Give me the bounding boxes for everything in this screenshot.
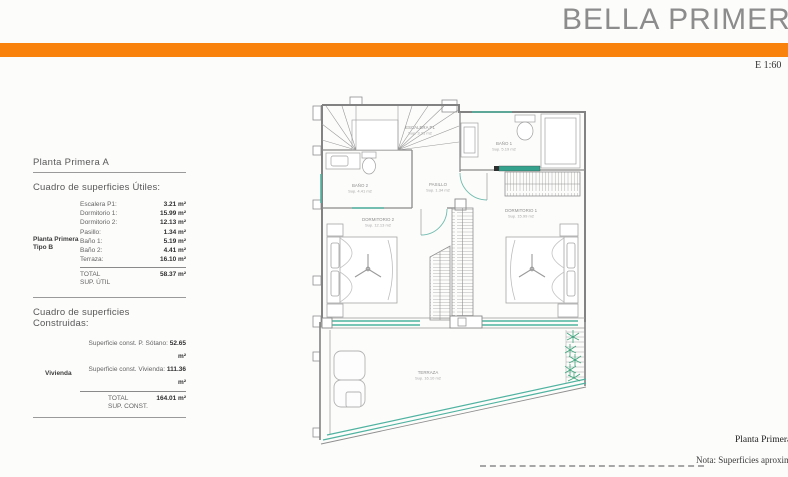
total-label-line2: SUP. ÚTIL [80,279,110,286]
bed-dorm2 [327,224,397,317]
construidas-table: Vivienda Superficie const. P. Sótano: 52… [33,336,186,411]
table-row: Baño 2:4.41 m² [80,246,186,255]
row-label: Baño 2: [80,246,102,255]
total-label-line1: TOTAL [108,395,128,402]
plan-caption: Planta Primera [735,435,788,445]
table-row: Superficie const. Vivienda: 111.36 m² [80,362,186,388]
room-area-dorm1: Sup. 15.99 m2 [508,214,535,219]
room-label-dorm1: DORMITORIO 1 [505,208,538,213]
room-label-pasillo: PASILLO [429,182,448,187]
accent-divider-bar [0,43,788,57]
room-label-terraza: TERRAZA [418,370,439,375]
total-value: 58.37 m² [160,271,186,287]
row-label: Dormitorio 1: [80,209,117,218]
glass-partition [494,166,540,171]
floor-plan-drawing: ESCALERA P1 Sup. 3.21 m2 BAÑO 2 Sup. 4.4… [298,88,598,470]
row-value: 15.99 m² [160,209,186,218]
bathroom1-fixtures [461,114,580,168]
footer-note: Nota: Superficies aproximadas [696,455,788,465]
row-value: 12.13 m² [160,218,186,227]
construidas-rows: Superficie const. P. Sótano: 52.65 m² Su… [80,336,186,411]
plants-icon [565,330,581,381]
construidas-total-row: TOTAL SUP. CONST. 164.01 m² [80,391,186,411]
utiles-group-label: Planta Primera Tipo B [33,200,80,287]
utiles-total-row: TOTAL SUP. ÚTIL 58.37 m² [80,267,186,287]
group-label-line2: Tipo B [33,244,80,252]
bed-dorm1 [506,224,578,317]
row-value: 1.34 m² [164,228,186,237]
total-value: 164.01 m² [156,395,186,411]
total-label-line1: TOTAL [80,271,100,278]
staircase [322,106,459,150]
utiles-table: Planta Primera Tipo B Escalera P1:3.21 m… [33,200,186,287]
room-area-bano1: Sup. 5.19 m2 [492,147,517,152]
wardrobe-central-left [430,246,450,320]
room-label-dorm2: DORMITORIO 2 [362,217,395,222]
dashed-divider [480,465,704,467]
table-row: Dormitorio 1:15.99 m² [80,209,186,218]
divider [33,172,186,173]
utiles-table-title: Cuadro de superficies Útiles: [33,182,186,193]
total-label: TOTAL SUP. CONST. [80,395,148,411]
bathroom2-fixtures [326,152,376,174]
table-row: Baño 1:5.19 m² [80,237,186,246]
divider [33,417,186,418]
row-value: 16.10 m² [160,255,186,264]
table-row: Terraza:16.10 m² [80,255,186,264]
room-area-pasillo: Sup. 1.34 m2 [426,188,451,193]
table-row: Pasillo:1.34 m² [80,228,186,237]
window-band [322,316,585,328]
row-label: Baño 1: [80,237,102,246]
row-value: 3.21 m² [164,200,186,209]
row-label: Escalera P1: [80,200,117,209]
row-label: Terraza: [80,255,103,264]
row-value: 5.19 m² [164,237,186,246]
total-label: TOTAL SUP. ÚTIL [80,271,110,287]
plan-heading: Planta Primera A [33,157,186,168]
room-label-bano1: BAÑO 1 [496,141,513,146]
construidas-group-label: Vivienda [33,336,80,411]
room-label-escalera: ESCALERA P1 [405,125,435,130]
total-label-line2: SUP. CONST. [108,403,148,410]
row-label: Superficie const. P. Sótano: [89,340,170,347]
group-label-line1: Planta Primera [33,236,80,244]
row-label: Superficie const. Vivienda: [89,366,167,373]
terrace-sofa [334,351,365,407]
construidas-section: Cuadro de superficies Construidas: Vivie… [33,297,186,418]
construidas-table-title: Cuadro de superficies Construidas: [33,307,186,329]
table-row: Dormitorio 2:12.13 m² [80,218,186,227]
wardrobe-dorm1 [505,172,580,196]
utiles-rows: Escalera P1:3.21 m² Dormitorio 1:15.99 m… [80,200,186,287]
page-title: BELLA PRIMERA A [562,3,788,37]
room-label-bano2: BAÑO 2 [352,183,369,188]
room-area-terraza: Sup. 16.10 m2 [415,376,442,381]
row-value: 4.41 m² [164,246,186,255]
row-value: 52.65 m² [170,340,186,360]
divider [33,297,186,298]
room-area-dorm2: Sup. 12.13 m2 [365,223,392,228]
row-label: Dormitorio 2: [80,218,117,227]
room-area-escalera: Sup. 3.21 m2 [408,131,433,136]
group-label: Vivienda [45,370,80,378]
wardrobe-central-right [452,208,473,320]
table-row: Escalera P1:3.21 m² [80,200,186,209]
row-label: Pasillo: [80,228,101,237]
room-area-bano2: Sup. 4.41 m2 [348,189,373,194]
drawing-scale-label: E 1:60 [755,60,781,71]
surface-tables-panel: Planta Primera A Cuadro de superficies Ú… [33,157,186,418]
table-row: Superficie const. P. Sótano: 52.65 m² [80,336,186,362]
row-value: 111.36 m² [167,366,186,386]
